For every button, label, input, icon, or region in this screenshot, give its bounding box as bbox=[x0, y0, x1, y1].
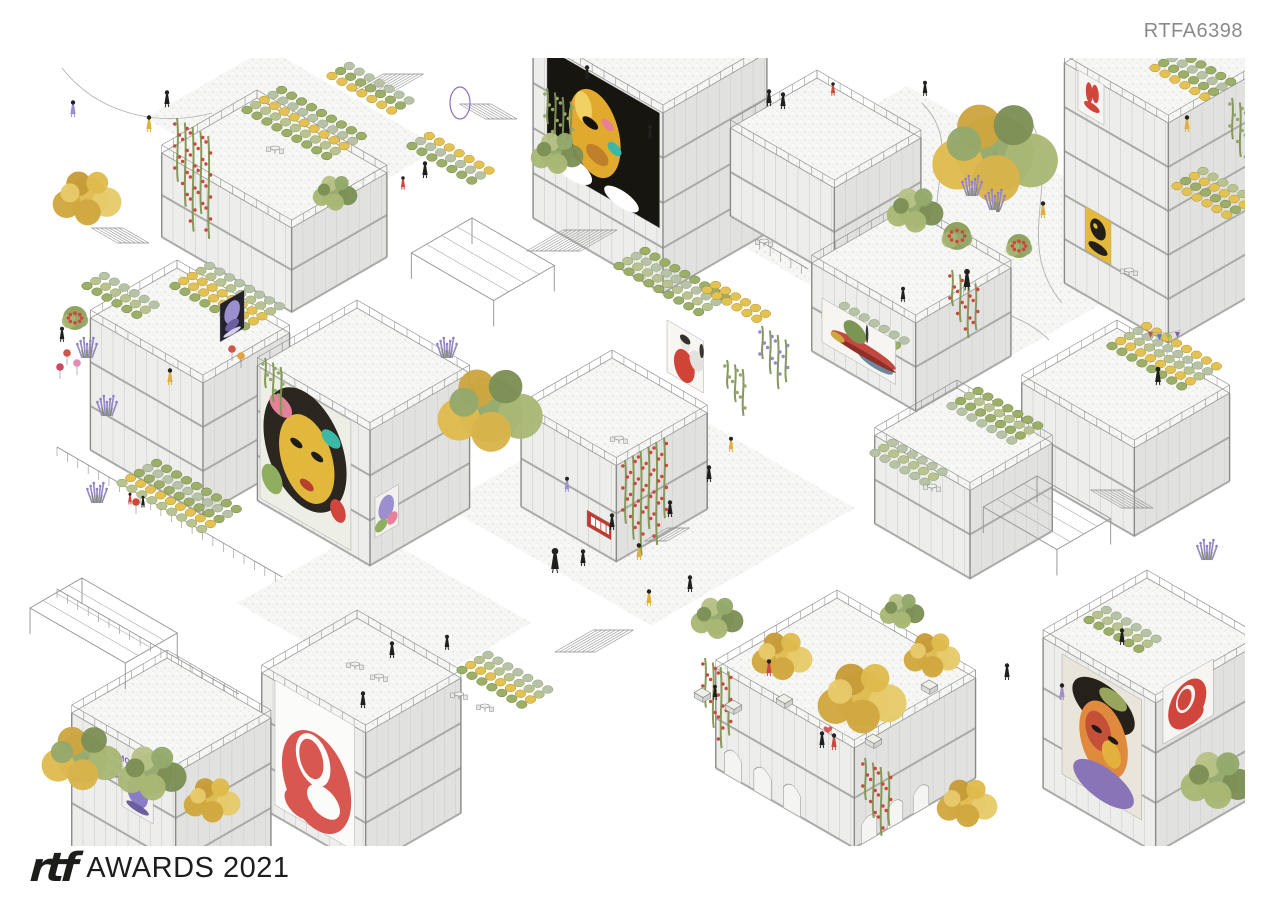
person-figure bbox=[146, 115, 151, 132]
ref-code: RTFA6398 bbox=[1144, 20, 1243, 43]
poster-fan-lady bbox=[667, 320, 704, 393]
person-figure bbox=[164, 90, 169, 107]
person-figure bbox=[60, 327, 65, 342]
sketch-purple-figure bbox=[450, 87, 470, 119]
award-text: AWARDS 2021 bbox=[86, 852, 289, 885]
isometric-city-illustration: NO ESTAMOSPINTADOSEN LA PARED! bbox=[30, 58, 1245, 846]
person-figure bbox=[923, 81, 928, 96]
rtf-logo: rtf bbox=[29, 848, 76, 888]
person-figure bbox=[401, 176, 405, 189]
person-figure bbox=[70, 100, 75, 117]
footer: rtf AWARDS 2021 bbox=[30, 848, 289, 888]
person-figure bbox=[141, 496, 145, 508]
artwork-svg: NO ESTAMOSPINTADOSEN LA PARED! bbox=[27, 58, 1245, 846]
person-figure bbox=[128, 493, 132, 505]
person-figure bbox=[1004, 663, 1009, 680]
person-figure bbox=[422, 161, 427, 178]
artwork: NO ESTAMOSPINTADOSEN LA PARED! bbox=[27, 58, 1245, 846]
